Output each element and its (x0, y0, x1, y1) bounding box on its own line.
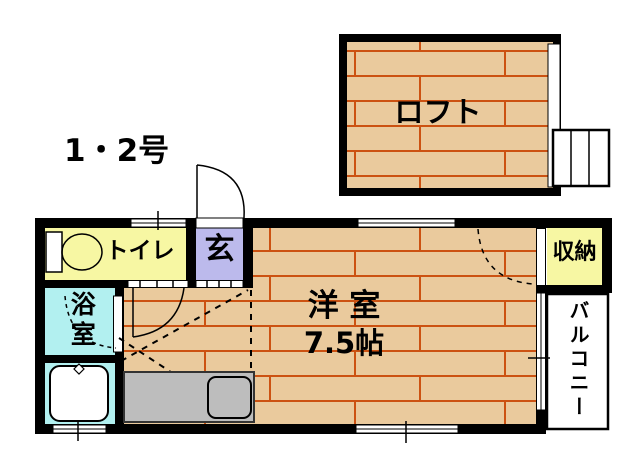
western-room-size-label: 7.5帖 (274, 328, 414, 358)
kitchen-counter (124, 372, 254, 422)
loft-label: ロフト (390, 97, 486, 127)
western-room-label: 洋 室 (274, 290, 414, 323)
entrance-door-swing (197, 165, 244, 218)
balcony-label: バルコニー (567, 300, 588, 432)
floor-plan-page: 1・2号 ロフト トイレ 玄 浴室 洋 室 7.5帖 収納 バルコニー (0, 0, 640, 461)
entrance-label: 玄 (196, 234, 243, 266)
storage-label: 収納 (547, 241, 602, 264)
loft-ladder-icon (553, 130, 609, 186)
storage-door (537, 229, 546, 286)
unit-number-label: 1・2号 (64, 135, 169, 168)
toilet-label: トイレ (98, 239, 182, 263)
entrance-door-opening (196, 218, 243, 228)
toilet-door-threshold (128, 281, 188, 288)
floor-plan-drawing (0, 0, 640, 461)
bath-label: 浴室 (68, 291, 94, 361)
bathtub-icon (50, 364, 108, 421)
bath-door (114, 296, 123, 352)
